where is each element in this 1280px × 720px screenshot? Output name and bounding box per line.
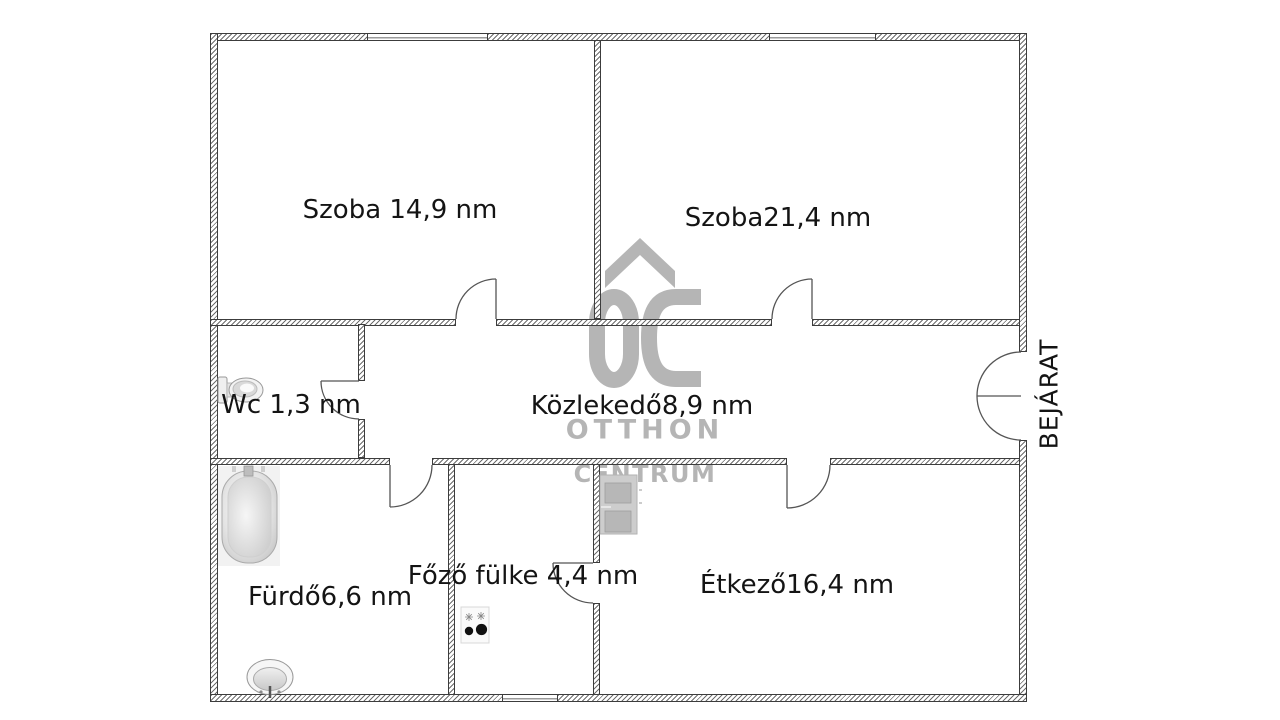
door-etkezo [787, 465, 830, 508]
door-szoba-2 [772, 279, 812, 319]
entrance-door [977, 352, 1021, 440]
door-furdo [390, 465, 432, 507]
door-szoba-1 [456, 279, 496, 319]
sink-icon [247, 660, 293, 699]
room-label-fozo-fulke: Főző fülke 4,4 nm [408, 561, 638, 591]
bathtub-icon [218, 466, 280, 566]
room-label-furdo: Fürdő6,6 nm [248, 582, 412, 612]
entrance-label: BEJÁRAT [1035, 339, 1064, 450]
refrigerator-icon [600, 475, 642, 534]
room-label-szoba-2: Szoba21,4 nm [685, 203, 871, 233]
room-label-etkezo: Étkező16,4 nm [700, 570, 894, 600]
doors-and-fixtures [0, 0, 1280, 720]
room-label-kozlekedo: Közlekedő8,9 nm [531, 391, 754, 421]
floor-plan: OTTHON CENTRUM [0, 0, 1280, 720]
stove-icon [461, 607, 489, 643]
room-label-wc: Wc 1,3 nm [221, 390, 361, 420]
room-label-szoba-1: Szoba 14,9 nm [303, 195, 498, 225]
